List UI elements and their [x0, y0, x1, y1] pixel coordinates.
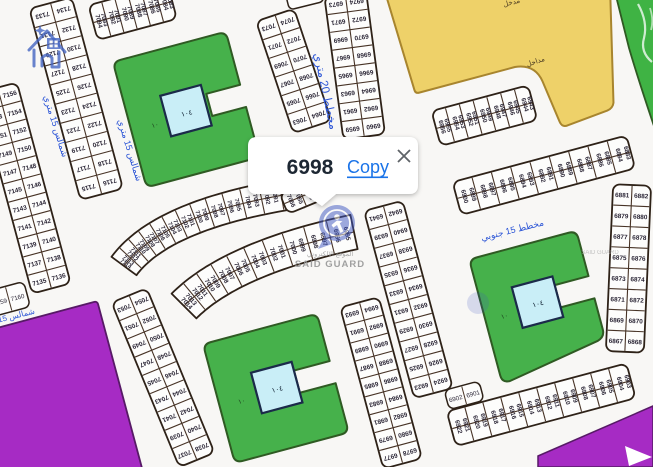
- svg-text:6867: 6867: [609, 338, 624, 346]
- svg-text:6881: 6881: [615, 192, 630, 200]
- svg-text:SAID GUARD: SAID GUARD: [295, 259, 365, 270]
- svg-text:6880: 6880: [633, 214, 648, 222]
- svg-text:6873: 6873: [611, 275, 626, 283]
- svg-text:6876: 6876: [631, 255, 646, 263]
- svg-text:6878: 6878: [632, 234, 647, 242]
- svg-text:6870: 6870: [628, 318, 643, 326]
- svg-text:6877: 6877: [613, 234, 628, 242]
- svg-text:6879: 6879: [614, 213, 629, 221]
- svg-text:6998: 6998: [287, 156, 334, 179]
- svg-text:6872: 6872: [629, 297, 644, 305]
- svg-text:6882: 6882: [634, 193, 649, 201]
- svg-text:Copy: Copy: [347, 157, 389, 177]
- svg-text:6874: 6874: [630, 276, 645, 284]
- svg-text:6871: 6871: [610, 296, 625, 304]
- svg-text:6973: 6973: [328, 0, 343, 8]
- svg-text:6974: 6974: [349, 0, 364, 5]
- svg-text:SAID GUARD: SAID GUARD: [581, 250, 619, 256]
- svg-text:6868: 6868: [628, 339, 643, 347]
- svg-text:6869: 6869: [609, 317, 624, 325]
- svg-text:الموقع الالكتروني: الموقع الالكتروني: [307, 250, 353, 258]
